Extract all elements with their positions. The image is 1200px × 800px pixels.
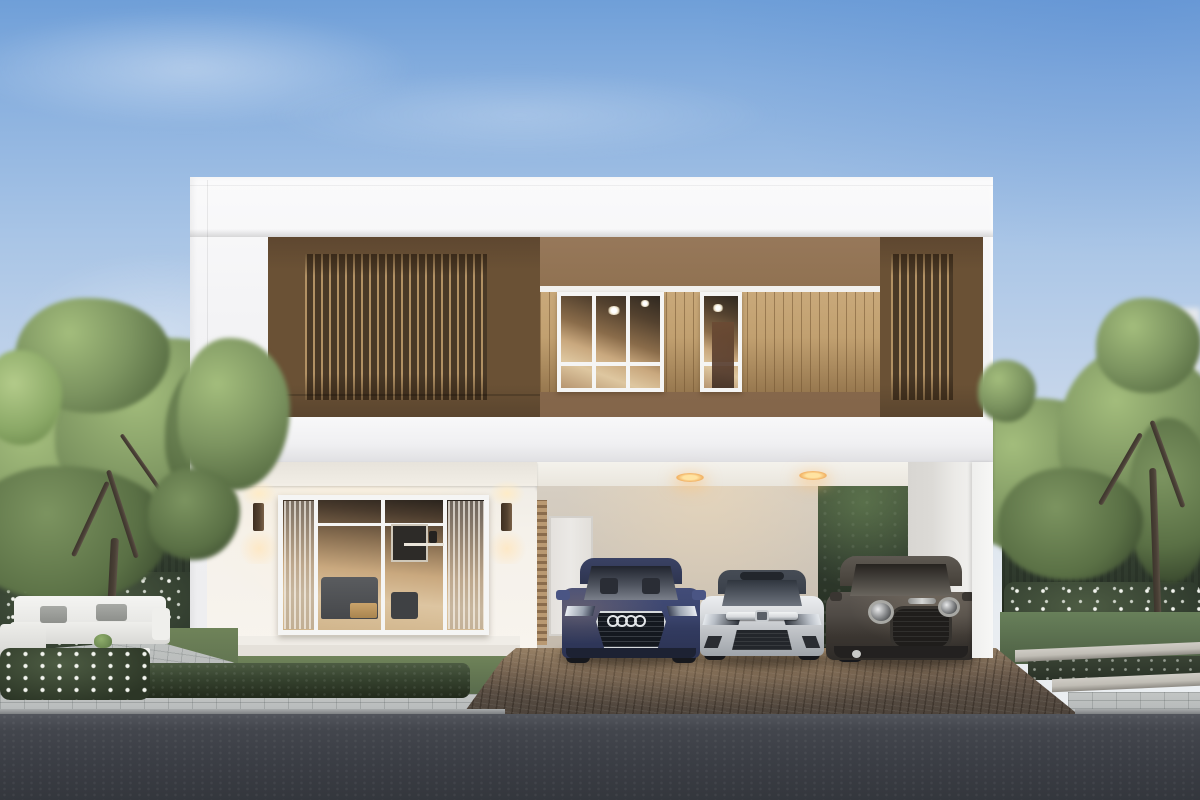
flower-bush-foreground [0,648,150,700]
window-mullion [626,296,630,388]
scene [0,0,1200,800]
carport-pillar-front-face [972,462,993,658]
honda-emblem [755,610,769,622]
audi-rings-badge [607,615,657,629]
ceiling-light-reflection [712,304,724,312]
recessed-ceiling-light [799,471,827,480]
wood-slats-left [305,254,487,400]
window-mullion [443,500,447,630]
side-mirror [692,590,706,600]
sheer-curtain [448,501,484,629]
wood-slat-accent [537,500,547,645]
ceiling-light-reflection [640,300,650,307]
tree-canopy-right [1128,418,1200,583]
headlight [938,597,960,617]
window-mullion [592,296,596,388]
parapet-edge [190,185,993,186]
parapet-shadow [190,229,993,237]
cloud [260,70,780,160]
tree-canopy-right [998,468,1143,580]
wall-sconce [501,503,512,531]
porch-step [210,645,520,656]
badge-ring [634,615,646,627]
porch-step [210,636,520,645]
window-mullion [561,362,660,366]
car-windshield [584,566,678,600]
sheer-curtain [284,501,314,629]
sofa-pillow [40,606,67,623]
car-bumper [566,648,696,658]
headlight [868,600,894,624]
wall-sconce [253,503,264,531]
car-seat [600,578,618,594]
interior-coffee-table [350,603,377,618]
car-seat [642,578,660,594]
panel-seam [268,394,540,396]
asphalt-road [0,714,1200,800]
car-windshield [722,580,802,606]
interior-ottoman [391,592,418,619]
ceiling-light-reflection [607,306,621,315]
interior-lamp [429,531,437,543]
car-windshield [850,564,952,596]
foreground-foliage [148,468,240,560]
foreground-foliage [978,360,1036,422]
tree-canopy-right [1096,298,1200,393]
potted-plant [94,634,112,648]
side-mirror [556,590,570,600]
side-mirror [830,592,842,601]
car-sunroof [740,572,784,580]
wood-slats-right [891,254,953,400]
interior-shelf [404,543,444,546]
headlight [565,606,595,616]
outdoor-sofa-armrest [152,608,170,640]
fog-light [852,650,861,658]
floor-slab-band [190,417,993,462]
recessed-ceiling-light [676,473,704,482]
headlight [667,606,697,616]
window-mullion [314,500,318,630]
interior-curtain [712,322,734,388]
mini-wing-badge [908,598,936,604]
sofa-pillow [96,604,127,621]
car-grille [732,630,792,650]
window-mullion [381,500,385,630]
trimmed-hedge-row [95,663,470,698]
